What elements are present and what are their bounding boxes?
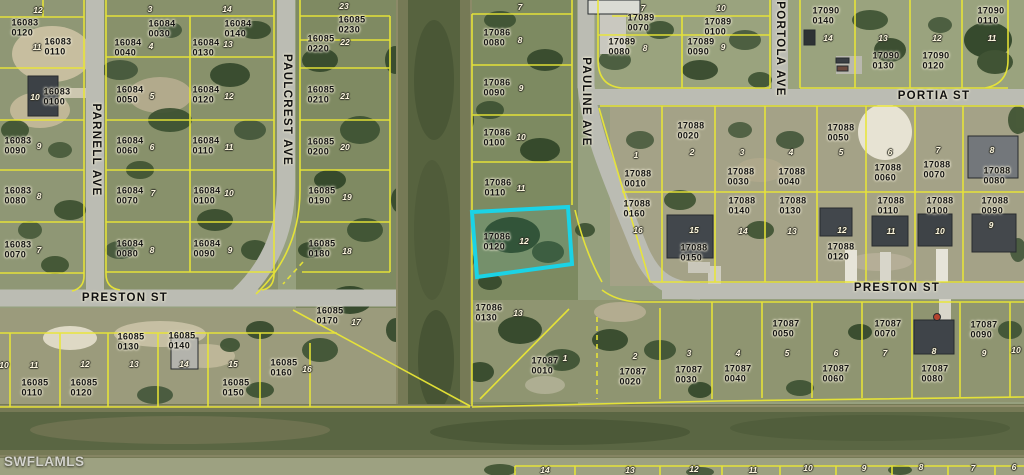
- lot-number: 9: [989, 220, 994, 230]
- lot-number: 7: [641, 3, 646, 13]
- parcel-label-17090-0120: 17090 0120: [922, 52, 949, 71]
- parcel-label-17087-0040: 17087 0040: [724, 365, 751, 384]
- lot-number: 13: [129, 359, 138, 369]
- parcel-label-17088-0050: 17088 0050: [827, 124, 854, 143]
- parcel-label-17087-0020: 17087 0020: [619, 368, 646, 387]
- parcel-label-16084-0100: 16084 0100: [193, 187, 220, 206]
- street-label-preston-st: PRESTON ST: [82, 292, 168, 304]
- lot-number: 9: [982, 348, 987, 358]
- parcel-label-16083-0070: 16083 0070: [4, 241, 31, 260]
- street-label-preston-st: PRESTON ST: [854, 282, 940, 294]
- lot-number: 14: [179, 359, 188, 369]
- lot-number: 8: [919, 462, 924, 472]
- parcel-label-17088-0020: 17088 0020: [677, 122, 704, 141]
- lot-number: 9: [519, 83, 524, 93]
- parcel-label-16085-0110: 16085 0110: [21, 379, 48, 398]
- parcel-label-17087-0060: 17087 0060: [822, 365, 849, 384]
- parcel-label-17089-0100: 17089 0100: [704, 18, 731, 37]
- lot-number: 12: [519, 236, 528, 246]
- lot-number: 14: [540, 465, 549, 475]
- lot-number: 7: [518, 2, 523, 12]
- parcel-label-17087-0030: 17087 0030: [675, 366, 702, 385]
- lot-number: 14: [222, 4, 231, 14]
- parcel-label-17086-0100: 17086 0100: [483, 129, 510, 148]
- lot-number: 13: [223, 39, 232, 49]
- lot-number: 22: [340, 37, 349, 47]
- parcel-label-17086-0080: 17086 0080: [483, 29, 510, 48]
- lot-number: 12: [689, 464, 698, 474]
- lot-number: 11: [887, 226, 896, 236]
- lot-number: 8: [518, 35, 523, 45]
- parcel-label-16084-0050: 16084 0050: [116, 86, 143, 105]
- lot-number: 15: [228, 359, 237, 369]
- parcel-label-17090-0140: 17090 0140: [812, 7, 839, 26]
- lot-number: 21: [340, 91, 349, 101]
- parcel-label-16085-0150: 16085 0150: [222, 379, 249, 398]
- lot-number: 11: [988, 33, 997, 43]
- lot-number: 10: [1011, 345, 1020, 355]
- mls-watermark: SWFLAMLS: [4, 454, 85, 469]
- lot-number: 5: [839, 147, 844, 157]
- lot-number: 12: [837, 225, 846, 235]
- parcel-label-17088-0090: 17088 0090: [981, 197, 1008, 216]
- lot-number: 8: [932, 346, 937, 356]
- parcel-label-17088-0120: 17088 0120: [827, 243, 854, 262]
- lot-number: 15: [689, 225, 698, 235]
- lot-number: 2: [633, 351, 638, 361]
- parcel-label-16084-0090: 16084 0090: [193, 240, 220, 259]
- lot-number: 14: [738, 226, 747, 236]
- lot-number: 11: [749, 465, 758, 475]
- lot-number: 10: [716, 3, 725, 13]
- lot-number: 6: [888, 147, 893, 157]
- parcel-label-17088-0130: 17088 0130: [779, 197, 806, 216]
- parcel-label-16084-0040: 16084 0040: [114, 39, 141, 58]
- lot-number: 1: [563, 353, 568, 363]
- lot-number: 9: [228, 245, 233, 255]
- parcel-label-16085-0140: 16085 0140: [168, 332, 195, 351]
- lot-number: 13: [513, 308, 522, 318]
- parcel-label-17088-0110: 17088 0110: [877, 197, 904, 216]
- parcel-label-17089-0070: 17089 0070: [627, 14, 654, 33]
- parcel-label-16085-0200: 16085 0200: [307, 138, 334, 157]
- parcel-label-17087-0090: 17087 0090: [970, 321, 997, 340]
- parcel-label-17090-0110: 17090 0110: [977, 7, 1004, 26]
- lot-number: 10: [803, 463, 812, 473]
- parcel-label-16084-0140: 16084 0140: [224, 20, 251, 39]
- lot-number: 7: [37, 245, 42, 255]
- street-label-parnell-ave: PARNELL AVE: [90, 103, 102, 196]
- parcel-label-17089-0090: 17089 0090: [687, 38, 714, 57]
- parcel-label-17087-0050: 17087 0050: [772, 320, 799, 339]
- lot-number: 3: [148, 4, 153, 14]
- parcel-label-17088-0140: 17088 0140: [728, 197, 755, 216]
- lot-number: 17: [351, 317, 360, 327]
- parcel-label-17089-0080: 17089 0080: [608, 38, 635, 57]
- lot-number: 11: [30, 360, 39, 370]
- parcel-label-17086-0090: 17086 0090: [483, 79, 510, 98]
- street-label-portia-st: PORTIA ST: [898, 90, 971, 102]
- parcel-label-17088-0100: 17088 0100: [926, 197, 953, 216]
- parcel-label-16085-0210: 16085 0210: [307, 86, 334, 105]
- lot-number: 1: [634, 150, 639, 160]
- parcel-label-16084-0070: 16084 0070: [116, 187, 143, 206]
- lot-number: 11: [225, 142, 234, 152]
- lot-number: 12: [80, 359, 89, 369]
- lot-number: 7: [936, 145, 941, 155]
- lot-number: 10: [30, 92, 39, 102]
- parcel-label-17088-0060: 17088 0060: [874, 164, 901, 183]
- lot-number: 9: [862, 463, 867, 473]
- lot-number: 4: [149, 41, 154, 51]
- lot-number: 10: [516, 132, 525, 142]
- lot-number: 7: [151, 188, 156, 198]
- lot-number: 20: [340, 142, 349, 152]
- map-labels-layer: 16083 012016083 011016083 010016083 0090…: [0, 0, 1024, 475]
- parcel-label-16084-0120: 16084 0120: [192, 86, 219, 105]
- parcel-label-16085-0180: 16085 0180: [308, 240, 335, 259]
- lot-number: 23: [339, 1, 348, 11]
- parcel-label-17088-0030: 17088 0030: [727, 168, 754, 187]
- lot-number: 9: [37, 141, 42, 151]
- parcel-label-16083-0110: 16083 0110: [44, 38, 71, 57]
- lot-number: 13: [625, 465, 634, 475]
- parcel-label-17088-0150: 17088 0150: [680, 244, 707, 263]
- lot-number: 3: [687, 348, 692, 358]
- parcel-label-16085-0190: 16085 0190: [308, 187, 335, 206]
- parcel-label-16083-0100: 16083 0100: [43, 88, 70, 107]
- parcel-label-16083-0090: 16083 0090: [4, 137, 31, 156]
- lot-number: 10: [0, 360, 9, 370]
- lot-number: 2: [690, 147, 695, 157]
- street-label-pauline-ave: PAULINE AVE: [580, 57, 592, 146]
- lot-number: 13: [878, 33, 887, 43]
- parcel-label-17088-0160: 17088 0160: [623, 200, 650, 219]
- parcel-label-16085-0220: 16085 0220: [307, 35, 334, 54]
- parcel-label-17087-0010: 17087 0010: [531, 357, 558, 376]
- lot-number: 11: [517, 183, 526, 193]
- lot-number: 5: [150, 91, 155, 101]
- parcel-label-17088-0080: 17088 0080: [983, 167, 1010, 186]
- lot-number: 5: [785, 348, 790, 358]
- lot-number: 12: [33, 5, 42, 15]
- lot-number: 6: [834, 348, 839, 358]
- parcel-label-17087-0080: 17087 0080: [921, 365, 948, 384]
- parcel-label-17088-0040: 17088 0040: [778, 168, 805, 187]
- parcel-label-16085-0130: 16085 0130: [117, 333, 144, 352]
- parcel-label-16083-0120: 16083 0120: [11, 19, 38, 38]
- lot-number: 16: [633, 225, 642, 235]
- parcel-label-16084-0130: 16084 0130: [192, 39, 219, 58]
- parcel-label-17087-0070: 17087 0070: [874, 320, 901, 339]
- lot-number: 7: [971, 463, 976, 473]
- parcel-label-17086-0120: 17086 0120: [483, 233, 510, 252]
- lot-number: 12: [224, 91, 233, 101]
- lot-number: 6: [150, 142, 155, 152]
- parcel-label-16085-0230: 16085 0230: [338, 16, 365, 35]
- parcel-label-16085-0160: 16085 0160: [270, 359, 297, 378]
- lot-number: 12: [932, 33, 941, 43]
- lot-number: 8: [150, 245, 155, 255]
- lot-number: 8: [37, 191, 42, 201]
- parcel-label-16084-0110: 16084 0110: [192, 137, 219, 156]
- parcel-label-17088-0010: 17088 0010: [624, 170, 651, 189]
- parcel-label-17088-0070: 17088 0070: [923, 161, 950, 180]
- lot-number: 16: [302, 364, 311, 374]
- lot-number: 7: [883, 348, 888, 358]
- parcel-label-16085-0170: 16085 0170: [316, 307, 343, 326]
- parcel-label-17086-0130: 17086 0130: [475, 304, 502, 323]
- lot-number: 9: [721, 42, 726, 52]
- parcel-label-16084-0030: 16084 0030: [148, 20, 175, 39]
- street-label-portola-ave: PORTOLA AVE: [774, 1, 786, 96]
- lot-number: 13: [787, 226, 796, 236]
- street-label-paulcrest-ave: PAULCREST AVE: [281, 54, 293, 166]
- lot-number: 19: [342, 192, 351, 202]
- lot-number: 14: [823, 33, 832, 43]
- lot-number: 11: [33, 42, 42, 52]
- lot-number: 6: [1012, 462, 1017, 472]
- lot-number: 10: [935, 226, 944, 236]
- parcel-label-17086-0110: 17086 0110: [484, 179, 511, 198]
- lot-number: 3: [740, 147, 745, 157]
- lot-number: 4: [789, 147, 794, 157]
- lot-number: 18: [342, 246, 351, 256]
- parcel-label-16084-0080: 16084 0080: [116, 240, 143, 259]
- lot-number: 10: [224, 188, 233, 198]
- lot-number: 8: [990, 145, 995, 155]
- aerial-parcel-map: 16083 012016083 011016083 010016083 0090…: [0, 0, 1024, 475]
- parcel-label-16084-0060: 16084 0060: [116, 137, 143, 156]
- parcel-label-16083-0080: 16083 0080: [4, 187, 31, 206]
- parcel-label-16085-0120: 16085 0120: [70, 379, 97, 398]
- lot-number: 4: [736, 348, 741, 358]
- parcel-label-17090-0130: 17090 0130: [872, 52, 899, 71]
- lot-number: 8: [643, 43, 648, 53]
